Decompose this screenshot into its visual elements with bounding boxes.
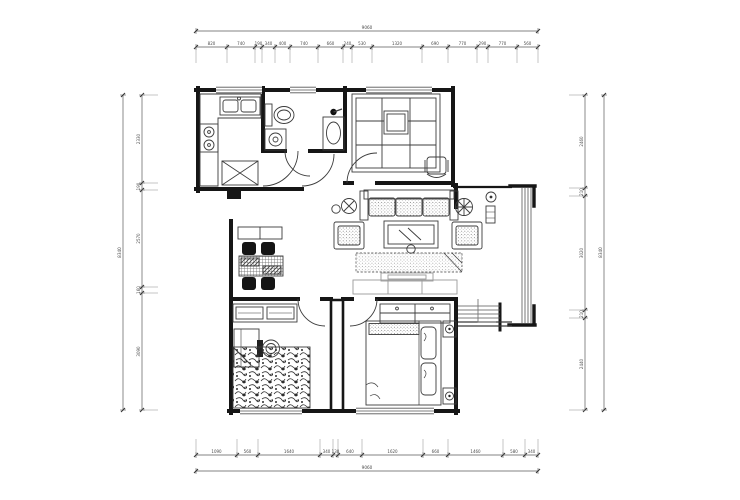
living-room bbox=[332, 190, 482, 294]
door-bedroom-right bbox=[350, 299, 377, 326]
window-kitchen-top bbox=[216, 86, 262, 94]
plant-pot bbox=[486, 192, 496, 223]
wardrobe-right bbox=[380, 304, 450, 323]
washbasin bbox=[323, 117, 344, 150]
svg-text:770: 770 bbox=[459, 41, 467, 46]
svg-text:210: 210 bbox=[579, 310, 584, 318]
svg-text:2570: 2570 bbox=[136, 233, 141, 244]
dimension-left: 2330190257016030908340 bbox=[117, 93, 158, 412]
svg-text:340: 340 bbox=[323, 449, 331, 454]
kitchen-sink bbox=[220, 97, 260, 115]
svg-text:1320: 1320 bbox=[392, 41, 403, 46]
svg-text:340: 340 bbox=[528, 449, 536, 454]
svg-text:400: 400 bbox=[279, 41, 287, 46]
svg-text:820: 820 bbox=[208, 41, 216, 46]
balcony bbox=[478, 192, 496, 322]
floor-plan-canvas: 8207401903404007406602405301320690770290… bbox=[0, 0, 740, 500]
stove bbox=[200, 124, 218, 152]
svg-text:340: 340 bbox=[265, 41, 273, 46]
svg-text:210: 210 bbox=[579, 188, 584, 196]
svg-text:580: 580 bbox=[510, 449, 518, 454]
svg-text:640: 640 bbox=[346, 449, 354, 454]
window-bedroom-right-bottom bbox=[356, 407, 434, 415]
rug bbox=[356, 253, 462, 272]
svg-text:660: 660 bbox=[327, 41, 335, 46]
bathroom bbox=[265, 104, 344, 150]
window-ledge bbox=[458, 306, 500, 318]
floor-lamp-left bbox=[332, 199, 357, 214]
svg-text:8340: 8340 bbox=[598, 247, 603, 258]
bed-right bbox=[366, 321, 441, 405]
svg-text:1460: 1460 bbox=[470, 449, 481, 454]
window-balcony-east bbox=[522, 188, 531, 323]
door-hall bbox=[302, 154, 334, 186]
svg-text:1090: 1090 bbox=[211, 449, 222, 454]
armchair-right bbox=[452, 222, 482, 249]
svg-text:530: 530 bbox=[358, 41, 366, 46]
svg-text:3090: 3090 bbox=[136, 346, 141, 357]
svg-text:560: 560 bbox=[524, 41, 532, 46]
dining-area bbox=[238, 227, 283, 290]
svg-text:9060: 9060 bbox=[362, 25, 373, 30]
window-bath-top bbox=[290, 86, 316, 94]
svg-text:8340: 8340 bbox=[117, 247, 122, 258]
svg-text:130: 130 bbox=[332, 449, 340, 454]
dining-table bbox=[239, 256, 283, 276]
wardrobe-left bbox=[233, 304, 297, 322]
washing-machine bbox=[265, 129, 286, 150]
svg-text:1640: 1640 bbox=[284, 449, 295, 454]
svg-text:290: 290 bbox=[479, 41, 487, 46]
bedroom-left bbox=[233, 304, 310, 408]
svg-text:690: 690 bbox=[431, 41, 439, 46]
floor-lamp-right bbox=[456, 199, 473, 216]
toilet bbox=[265, 104, 294, 126]
svg-text:160: 160 bbox=[136, 286, 141, 294]
svg-text:2460: 2460 bbox=[579, 136, 584, 147]
dimension-right: 2460210302021024408340 bbox=[569, 93, 607, 412]
armchair-left bbox=[334, 222, 364, 249]
svg-text:1620: 1620 bbox=[387, 449, 398, 454]
study-room bbox=[352, 94, 448, 178]
dimension-bottom: 1090560164034013064016206601460580340906… bbox=[194, 439, 540, 474]
svg-text:660: 660 bbox=[432, 449, 440, 454]
ceiling-light-icon bbox=[330, 109, 342, 115]
dimension-lines: 8207401903404007406602405301320690770290… bbox=[117, 25, 607, 474]
svg-text:190: 190 bbox=[255, 41, 263, 46]
tv-stand bbox=[353, 273, 457, 294]
door-bedroom-left bbox=[298, 299, 325, 326]
coffee-table bbox=[384, 221, 438, 253]
svg-text:560: 560 bbox=[244, 449, 252, 454]
svg-text:2330: 2330 bbox=[136, 133, 141, 144]
bed-left bbox=[233, 347, 310, 408]
balcony-step bbox=[478, 299, 496, 322]
svg-text:240: 240 bbox=[344, 41, 352, 46]
svg-text:2440: 2440 bbox=[579, 358, 584, 369]
svg-text:770: 770 bbox=[499, 41, 507, 46]
sofa-three-seat bbox=[360, 190, 458, 220]
svg-text:190: 190 bbox=[136, 182, 141, 190]
refrigerator bbox=[222, 161, 258, 185]
study-chair bbox=[425, 157, 448, 178]
sideboard bbox=[238, 227, 282, 239]
svg-text:740: 740 bbox=[300, 41, 308, 46]
window-study-top bbox=[366, 86, 432, 94]
svg-text:740: 740 bbox=[237, 41, 245, 46]
svg-text:9060: 9060 bbox=[362, 465, 373, 470]
kitchen bbox=[200, 94, 261, 186]
floor-plan-page: 8207401903404007406602405301320690770290… bbox=[0, 0, 740, 500]
dimension-top: 8207401903404007406602405301320690770290… bbox=[194, 25, 540, 63]
svg-text:3020: 3020 bbox=[579, 247, 584, 258]
bedroom-right bbox=[366, 304, 456, 405]
